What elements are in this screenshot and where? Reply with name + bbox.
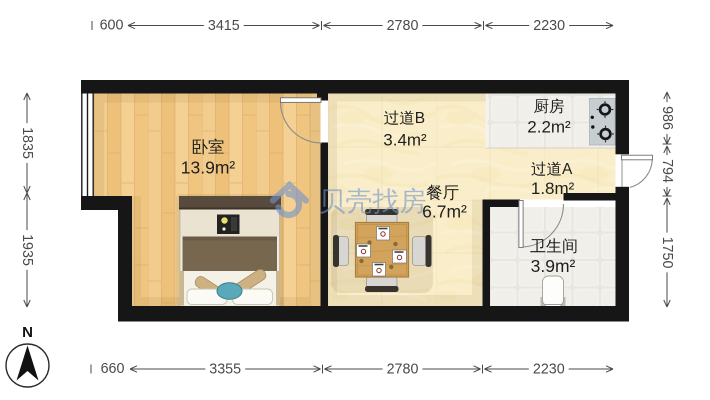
svg-text:3.4m²: 3.4m² xyxy=(383,130,427,149)
svg-text:3355: 3355 xyxy=(209,362,241,378)
svg-text:1835: 1835 xyxy=(19,127,35,159)
svg-text:986: 986 xyxy=(659,106,675,130)
svg-text:660: 660 xyxy=(101,361,125,377)
svg-text:A: A xyxy=(562,161,573,178)
svg-text:2780: 2780 xyxy=(387,362,419,378)
svg-text:3.9m²: 3.9m² xyxy=(531,256,576,276)
svg-text:1935: 1935 xyxy=(19,234,35,266)
svg-text:2780: 2780 xyxy=(387,18,419,34)
svg-text:B: B xyxy=(415,110,425,127)
svg-text:2230: 2230 xyxy=(533,362,565,378)
svg-text:6.7m²: 6.7m² xyxy=(422,202,467,222)
svg-text:794: 794 xyxy=(659,159,675,183)
svg-text:3415: 3415 xyxy=(208,18,240,34)
svg-text:13.9m²: 13.9m² xyxy=(181,158,236,178)
svg-text:2.2m²: 2.2m² xyxy=(527,118,571,137)
svg-text:600: 600 xyxy=(100,18,124,34)
svg-text:1750: 1750 xyxy=(659,237,675,269)
svg-text:N: N xyxy=(22,324,33,341)
svg-text:2230: 2230 xyxy=(533,18,565,34)
svg-text:1.8m²: 1.8m² xyxy=(531,179,575,198)
